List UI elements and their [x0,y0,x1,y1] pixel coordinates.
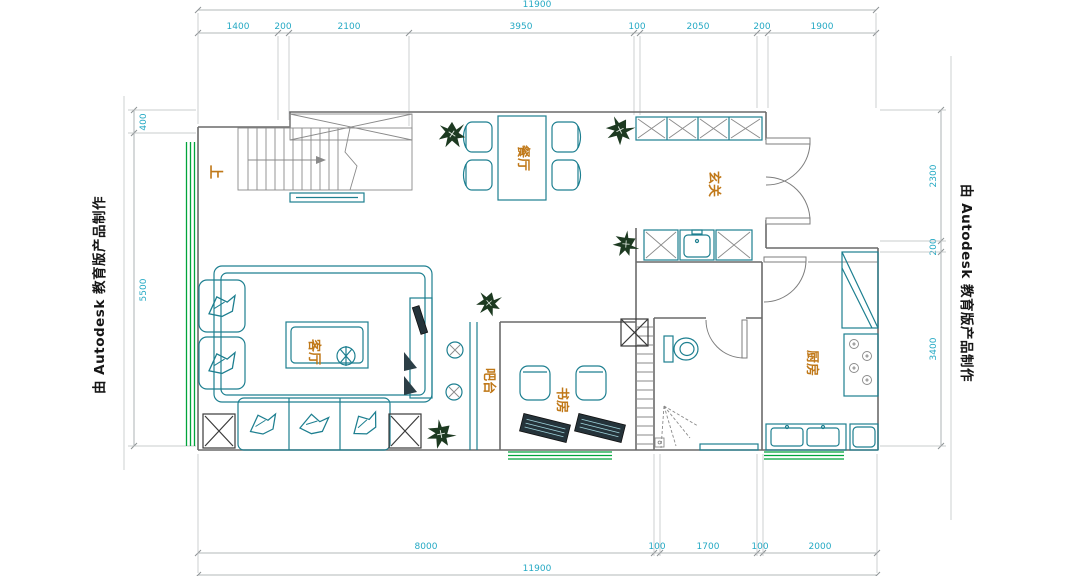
sink-basin [771,428,803,446]
plants [422,113,641,453]
kitchen-label: 厨房 [804,350,820,376]
left-window [187,142,195,446]
washbasin [684,235,710,257]
office-chair [576,366,606,400]
kitchen-window [764,452,844,459]
burner [850,364,859,373]
floor-plan-drawing: 11900 1400 200 2100 3950 100 2050 200 19… [0,0,1074,576]
bar-label: 吧台 [481,368,497,394]
dim-bottom-1: 100 [648,542,665,552]
dim-left-0: 400 [139,113,149,130]
dim-top-0: 1400 [227,22,250,32]
burner [850,340,859,349]
dining-room-label: 餐厅 [515,144,531,171]
cad-floor-plan-view: 11900 1400 200 2100 3950 100 2050 200 19… [0,0,1074,576]
rug [214,266,432,402]
dining-chair [466,160,492,190]
dim-bottom-total: 11900 [523,564,552,574]
dim-bottom-0: 8000 [415,542,438,552]
dim-right-2: 3400 [929,337,939,360]
floor-drain [655,438,664,447]
bathroom-door-leaf [742,320,747,358]
plant-icon [422,416,459,453]
desk [520,413,571,442]
plant-icon [439,122,465,147]
office-chair [520,366,550,400]
stairs-direction-arrow [316,156,326,164]
dim-top-2: 2100 [338,22,361,32]
extension-lines [128,13,946,573]
bar-counter [470,322,477,450]
study-label: 书房 [554,387,570,413]
dim-bottom-4: 2000 [809,542,832,552]
threshold [700,444,758,450]
entry-room-label: 玄关 [706,171,722,197]
dim-top-4: 100 [628,22,645,32]
basin-tap [692,230,702,234]
dim-bottom-3: 100 [751,542,768,552]
toilet-tank [664,336,673,362]
armchair [199,337,245,389]
dining-area: 餐厅 [464,116,581,200]
dining-chair [552,122,578,152]
dining-chair [466,122,492,152]
sink-basin [807,428,839,446]
plant-icon [602,113,638,148]
watermark-left: 由 Autodesk 教育版产品制作 [91,196,108,394]
sofa [238,398,390,450]
entry-door-leaf-lower [766,218,810,224]
walls [198,112,878,450]
stairs-up-label: 上 [207,165,223,179]
bar-area: 吧台 [446,322,497,450]
dim-top-6: 200 [753,22,770,32]
dim-right-0: 2300 [929,164,939,187]
desk [575,413,626,442]
entry-area: 玄关 [636,117,762,260]
dim-bottom-2: 1700 [697,542,720,552]
living-room-label: 客厅 [306,339,322,365]
dim-top-total: 11900 [523,0,552,10]
watermark-right: 由 Autodesk 教育版产品制作 [958,184,975,382]
entry-door-leaf-upper [766,138,810,144]
study-room: 书房 [520,366,626,443]
shoe-cabinet [636,117,762,140]
kitchen: 厨房 [766,252,878,450]
dim-top-7: 1900 [811,22,834,32]
shower-spray [661,406,698,448]
dimension-lines: 11900 1400 200 2100 3950 100 2050 200 19… [131,0,944,576]
dim-top-5: 2050 [687,22,710,32]
dim-top-1: 200 [274,22,291,32]
dining-chair [552,160,578,190]
plant-icon [474,289,503,317]
burner [863,352,872,361]
burner [863,376,872,385]
coffee-table [286,322,368,368]
dim-left-1: 5500 [139,278,149,301]
living-room: 客厅 [199,266,432,450]
kitchen-door-leaf [764,257,806,262]
study-window [508,452,612,459]
armchair [199,280,245,332]
dim-top-3: 3950 [510,22,533,32]
